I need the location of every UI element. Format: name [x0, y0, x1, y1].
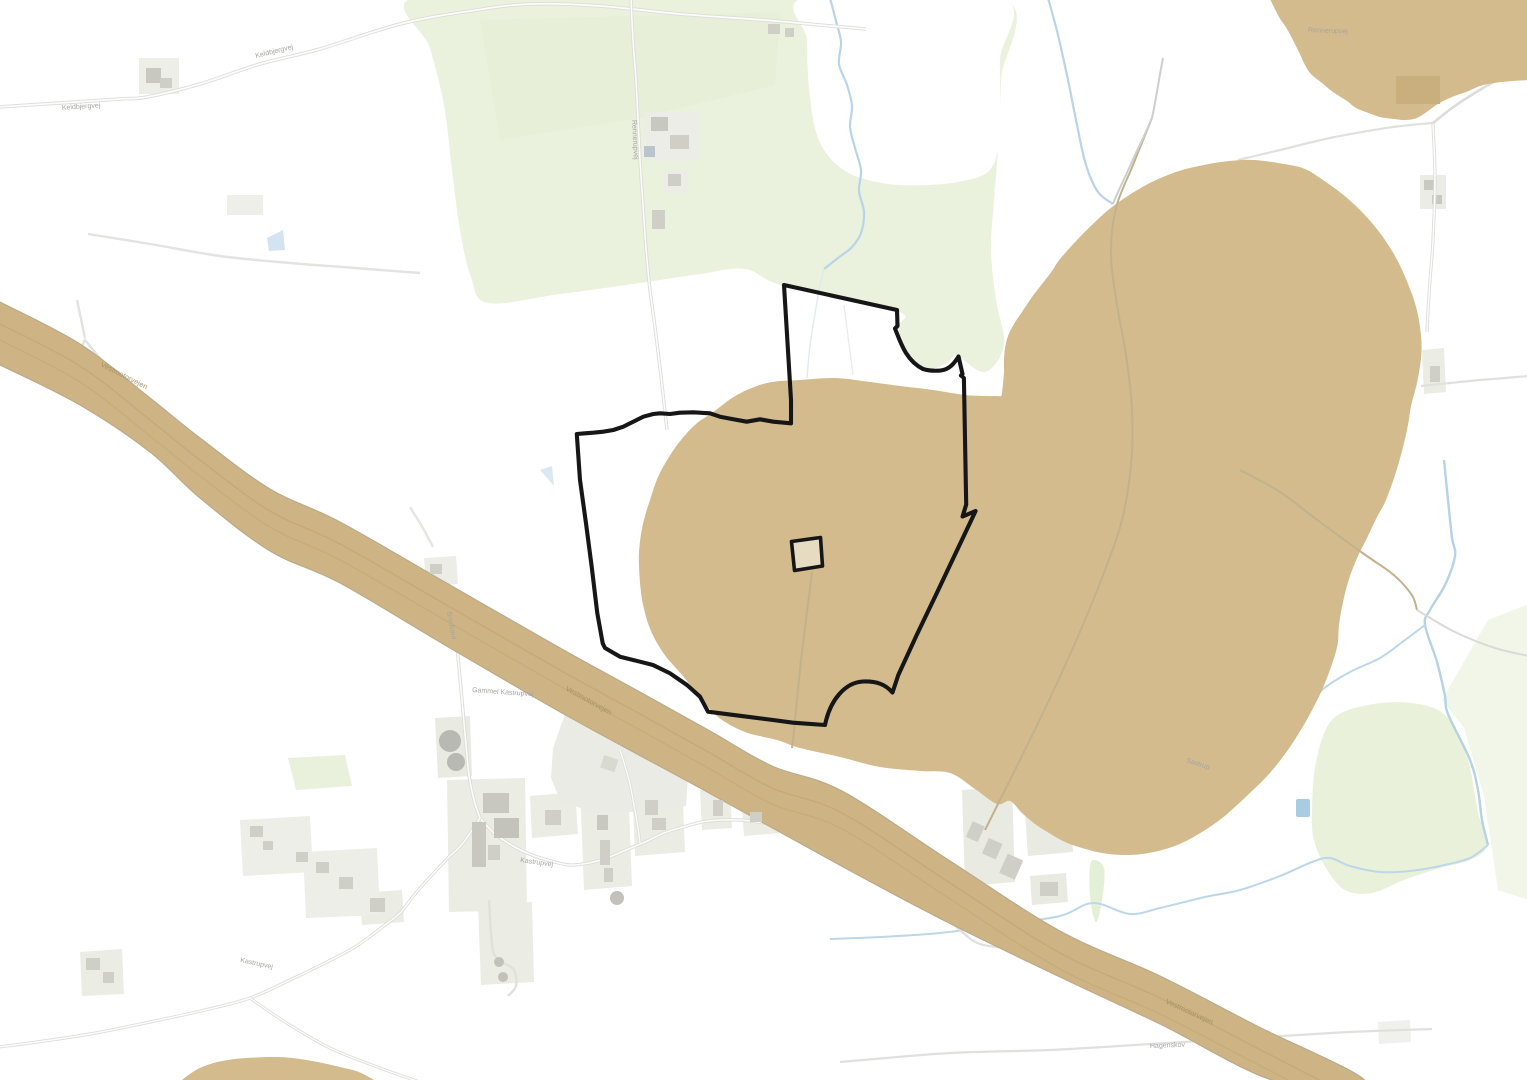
svg-text:Hagenskov: Hagenskov [1150, 1042, 1186, 1050]
svg-text:Rennerupvej: Rennerupvej [1308, 27, 1348, 35]
